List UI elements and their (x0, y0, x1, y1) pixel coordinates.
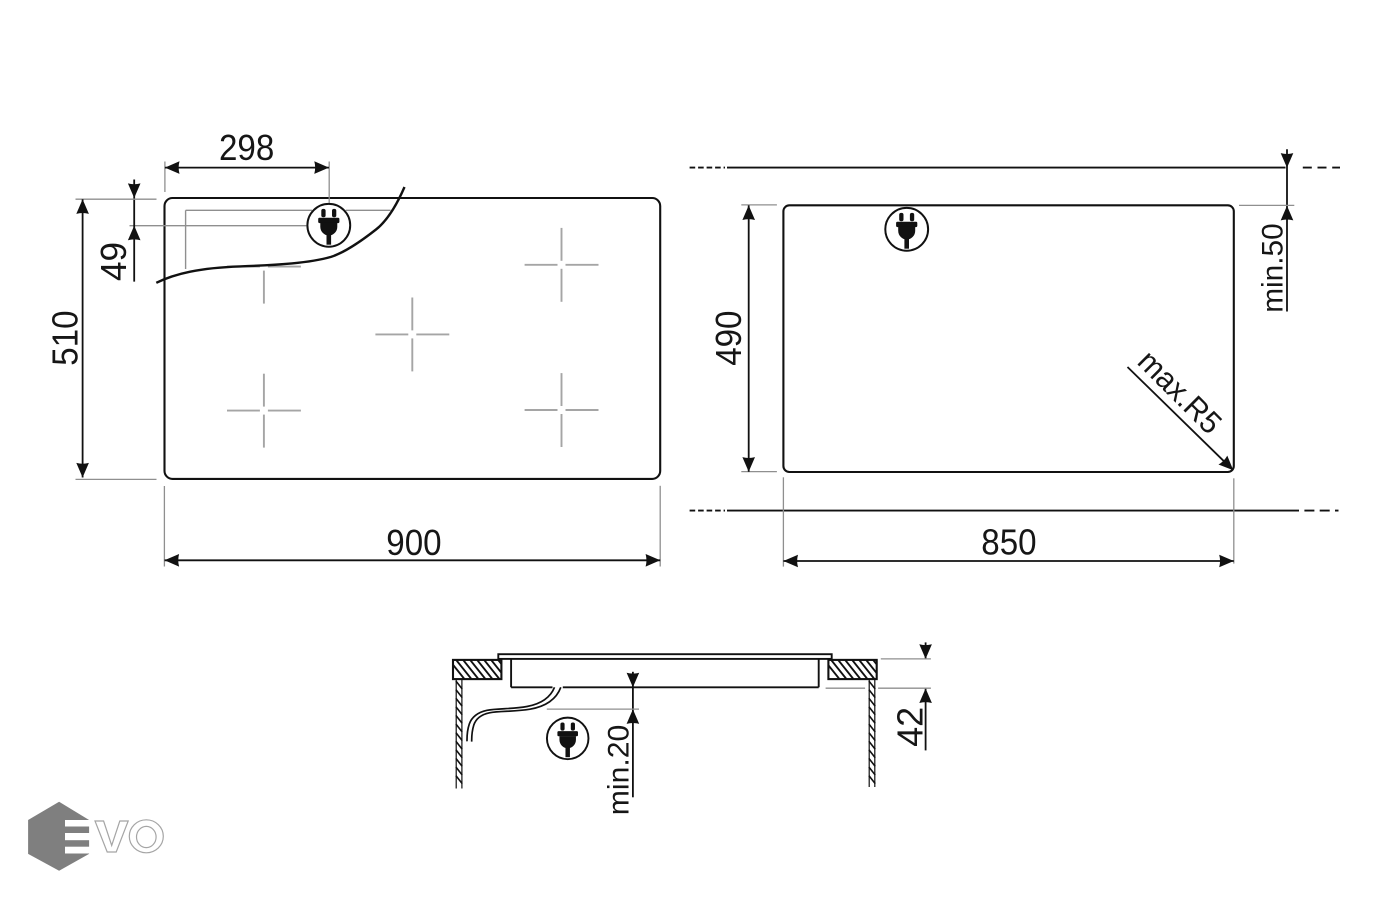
svg-text:298: 298 (219, 127, 274, 168)
svg-text:510: 510 (45, 310, 86, 365)
svg-text:49: 49 (93, 242, 134, 281)
svg-text:850: 850 (981, 522, 1036, 563)
svg-text:900: 900 (386, 522, 441, 563)
svg-text:min.20: min.20 (602, 725, 635, 816)
svg-text:42: 42 (890, 707, 931, 747)
svg-text:min.50: min.50 (1257, 223, 1290, 313)
svg-text:490: 490 (708, 311, 749, 366)
